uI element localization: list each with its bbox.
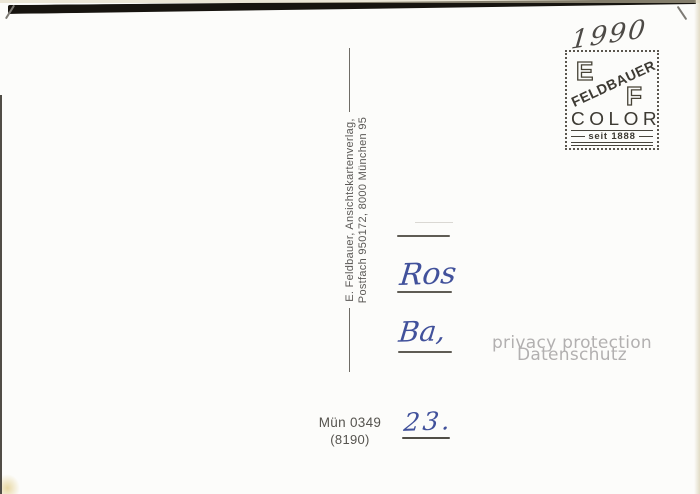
feldbauer-color-stamp: E F FELDBAUER COLOR seit 1888 — [565, 50, 659, 150]
stamp-letter-e: E — [576, 58, 593, 84]
publisher-name: E. Feldbauer, Ansichtskartenverlag, — [344, 118, 356, 302]
order-number-block: Mün 0349 (8190) — [298, 414, 402, 448]
underline-23 — [402, 437, 450, 439]
stamp-since-text: seit 1888 — [588, 132, 635, 141]
scan-top-edge-tint — [0, 0, 700, 3]
privacy-watermark: privacy protection Datenschutz — [472, 337, 672, 361]
order-number: Mün 0349 — [298, 414, 402, 431]
handwritten-line-23: 23. — [402, 406, 454, 437]
divider-dash-bottom — [349, 48, 350, 112]
stamp-since-block: seit 1888 — [571, 130, 653, 146]
scan-right-edge-tint — [694, 0, 700, 494]
publisher-line1-row: E. Feldbauer, Ansichtskartenverlag, — [344, 48, 356, 372]
underline-ba — [398, 351, 452, 353]
since-bottom-rule-2 — [571, 145, 653, 146]
blank-answer-line — [397, 235, 450, 237]
scan-left-edge-line — [0, 95, 2, 494]
pen-mark-top-right — [677, 6, 688, 20]
publisher-address: Postfach 950172, 8000 München 95 — [357, 48, 369, 372]
handwritten-line-ba: Ba, — [397, 314, 447, 349]
since-left-dash — [571, 136, 585, 137]
stamp-product-name: COLOR — [567, 110, 657, 131]
since-row: seit 1888 — [571, 132, 653, 141]
scan-corner-smudge — [2, 474, 20, 494]
order-code: (8190) — [298, 431, 402, 448]
since-bottom-rule-1 — [571, 142, 653, 143]
faint-smudge-line — [415, 222, 453, 223]
stamp-letter-f: F — [626, 83, 642, 109]
since-bottom-rules — [571, 142, 653, 146]
divider-dash-top — [349, 308, 350, 372]
since-right-dash — [639, 136, 653, 137]
handwritten-line-ros: Ros — [398, 256, 458, 293]
underline-ros — [397, 291, 452, 293]
publisher-imprint: E. Feldbauer, Ansichtskartenverlag, Post… — [339, 48, 373, 372]
